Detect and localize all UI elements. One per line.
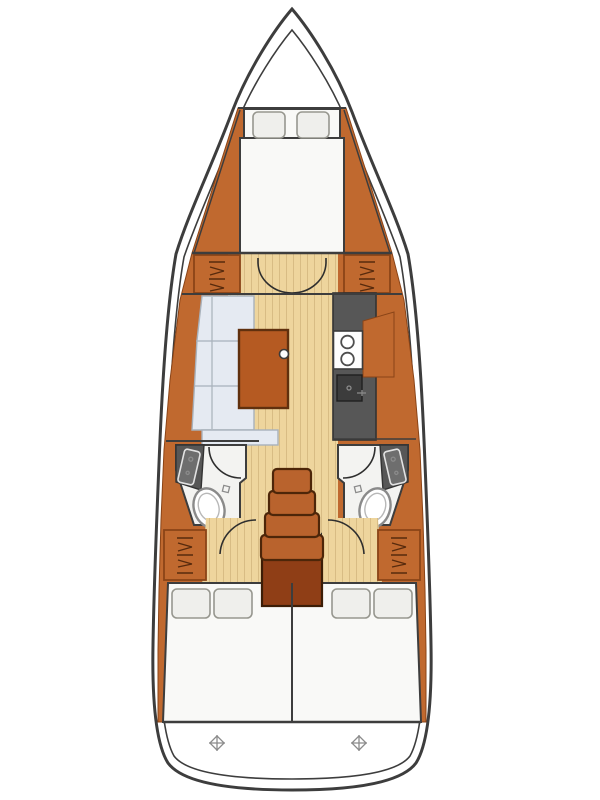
- companionway-step: [261, 535, 323, 560]
- vberth-mattress: [240, 138, 344, 253]
- pillow: [332, 589, 370, 618]
- floor-plan-canvas: [0, 0, 600, 800]
- aft-floor-port: [202, 518, 262, 583]
- companionway-step: [269, 491, 315, 515]
- saloon-table: [239, 330, 288, 408]
- hanging-locker: [344, 255, 390, 293]
- pillow: [172, 589, 210, 618]
- hanging-locker: [194, 255, 240, 293]
- pillow: [374, 589, 412, 618]
- galley-worktop: [363, 312, 394, 377]
- floor-plan-page: [0, 0, 600, 800]
- galley-sink: [337, 375, 362, 401]
- pillow: [297, 112, 329, 138]
- stove-burner-icon: [341, 353, 354, 366]
- table-knob-icon: [280, 350, 289, 359]
- aft-floor-starboard: [322, 518, 382, 583]
- companionway-step: [265, 513, 319, 537]
- pillow: [214, 589, 252, 618]
- companionway-step: [273, 469, 311, 493]
- pillow: [253, 112, 285, 138]
- stove-burner-icon: [341, 336, 354, 349]
- settee-chaise: [202, 430, 278, 445]
